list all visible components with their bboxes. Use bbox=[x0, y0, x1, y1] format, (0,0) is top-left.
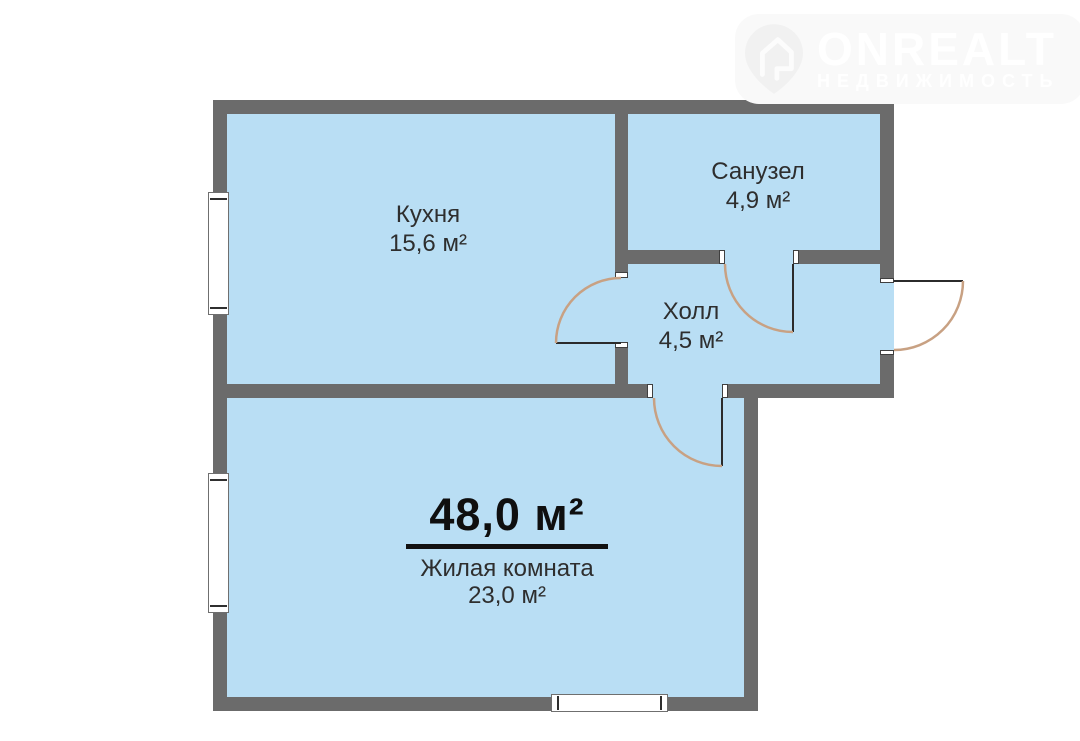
onrealt-logo: ONREALT НЕДВИЖИМОСТЬ bbox=[735, 14, 1080, 104]
logo-text: ONREALT НЕДВИЖИМОСТЬ bbox=[817, 27, 1059, 91]
doors-overlay bbox=[0, 0, 1080, 741]
bathroom-door-arc bbox=[725, 264, 793, 332]
logo-brand: ONREALT bbox=[817, 27, 1057, 71]
total-area-value: 48,0 м² bbox=[406, 490, 608, 540]
hall-area: 4,5 м² bbox=[659, 326, 724, 355]
entrance-door bbox=[894, 281, 963, 350]
bathroom-area: 4,9 м² bbox=[711, 186, 805, 215]
living-door bbox=[654, 398, 722, 466]
kitchen-door bbox=[556, 278, 621, 343]
entrance-door-arc bbox=[894, 281, 963, 350]
hall-label: Холл 4,5 м² bbox=[659, 297, 724, 355]
floorplan-page: Кухня 15,6 м² Санузел 4,9 м² Холл 4,5 м²… bbox=[0, 0, 1080, 741]
kitchen-door-arc bbox=[556, 278, 621, 343]
kitchen-name: Кухня bbox=[389, 200, 467, 229]
house-pin-icon bbox=[745, 24, 803, 94]
hall-name: Холл bbox=[659, 297, 724, 326]
kitchen-label: Кухня 15,6 м² bbox=[389, 200, 467, 258]
logo-subtitle: НЕДВИЖИМОСТЬ bbox=[817, 71, 1059, 91]
bathroom-name: Санузел bbox=[711, 157, 805, 186]
total-area-divider bbox=[406, 544, 608, 549]
living-room-name: Жилая комната bbox=[406, 555, 608, 582]
living-door-arc bbox=[654, 398, 722, 466]
living-room-area: 23,0 м² bbox=[406, 582, 608, 609]
bathroom-door bbox=[725, 264, 793, 332]
total-area-block: 48,0 м² Жилая комната 23,0 м² bbox=[406, 490, 608, 609]
bathroom-label: Санузел 4,9 м² bbox=[711, 157, 805, 215]
kitchen-area: 15,6 м² bbox=[389, 229, 467, 258]
